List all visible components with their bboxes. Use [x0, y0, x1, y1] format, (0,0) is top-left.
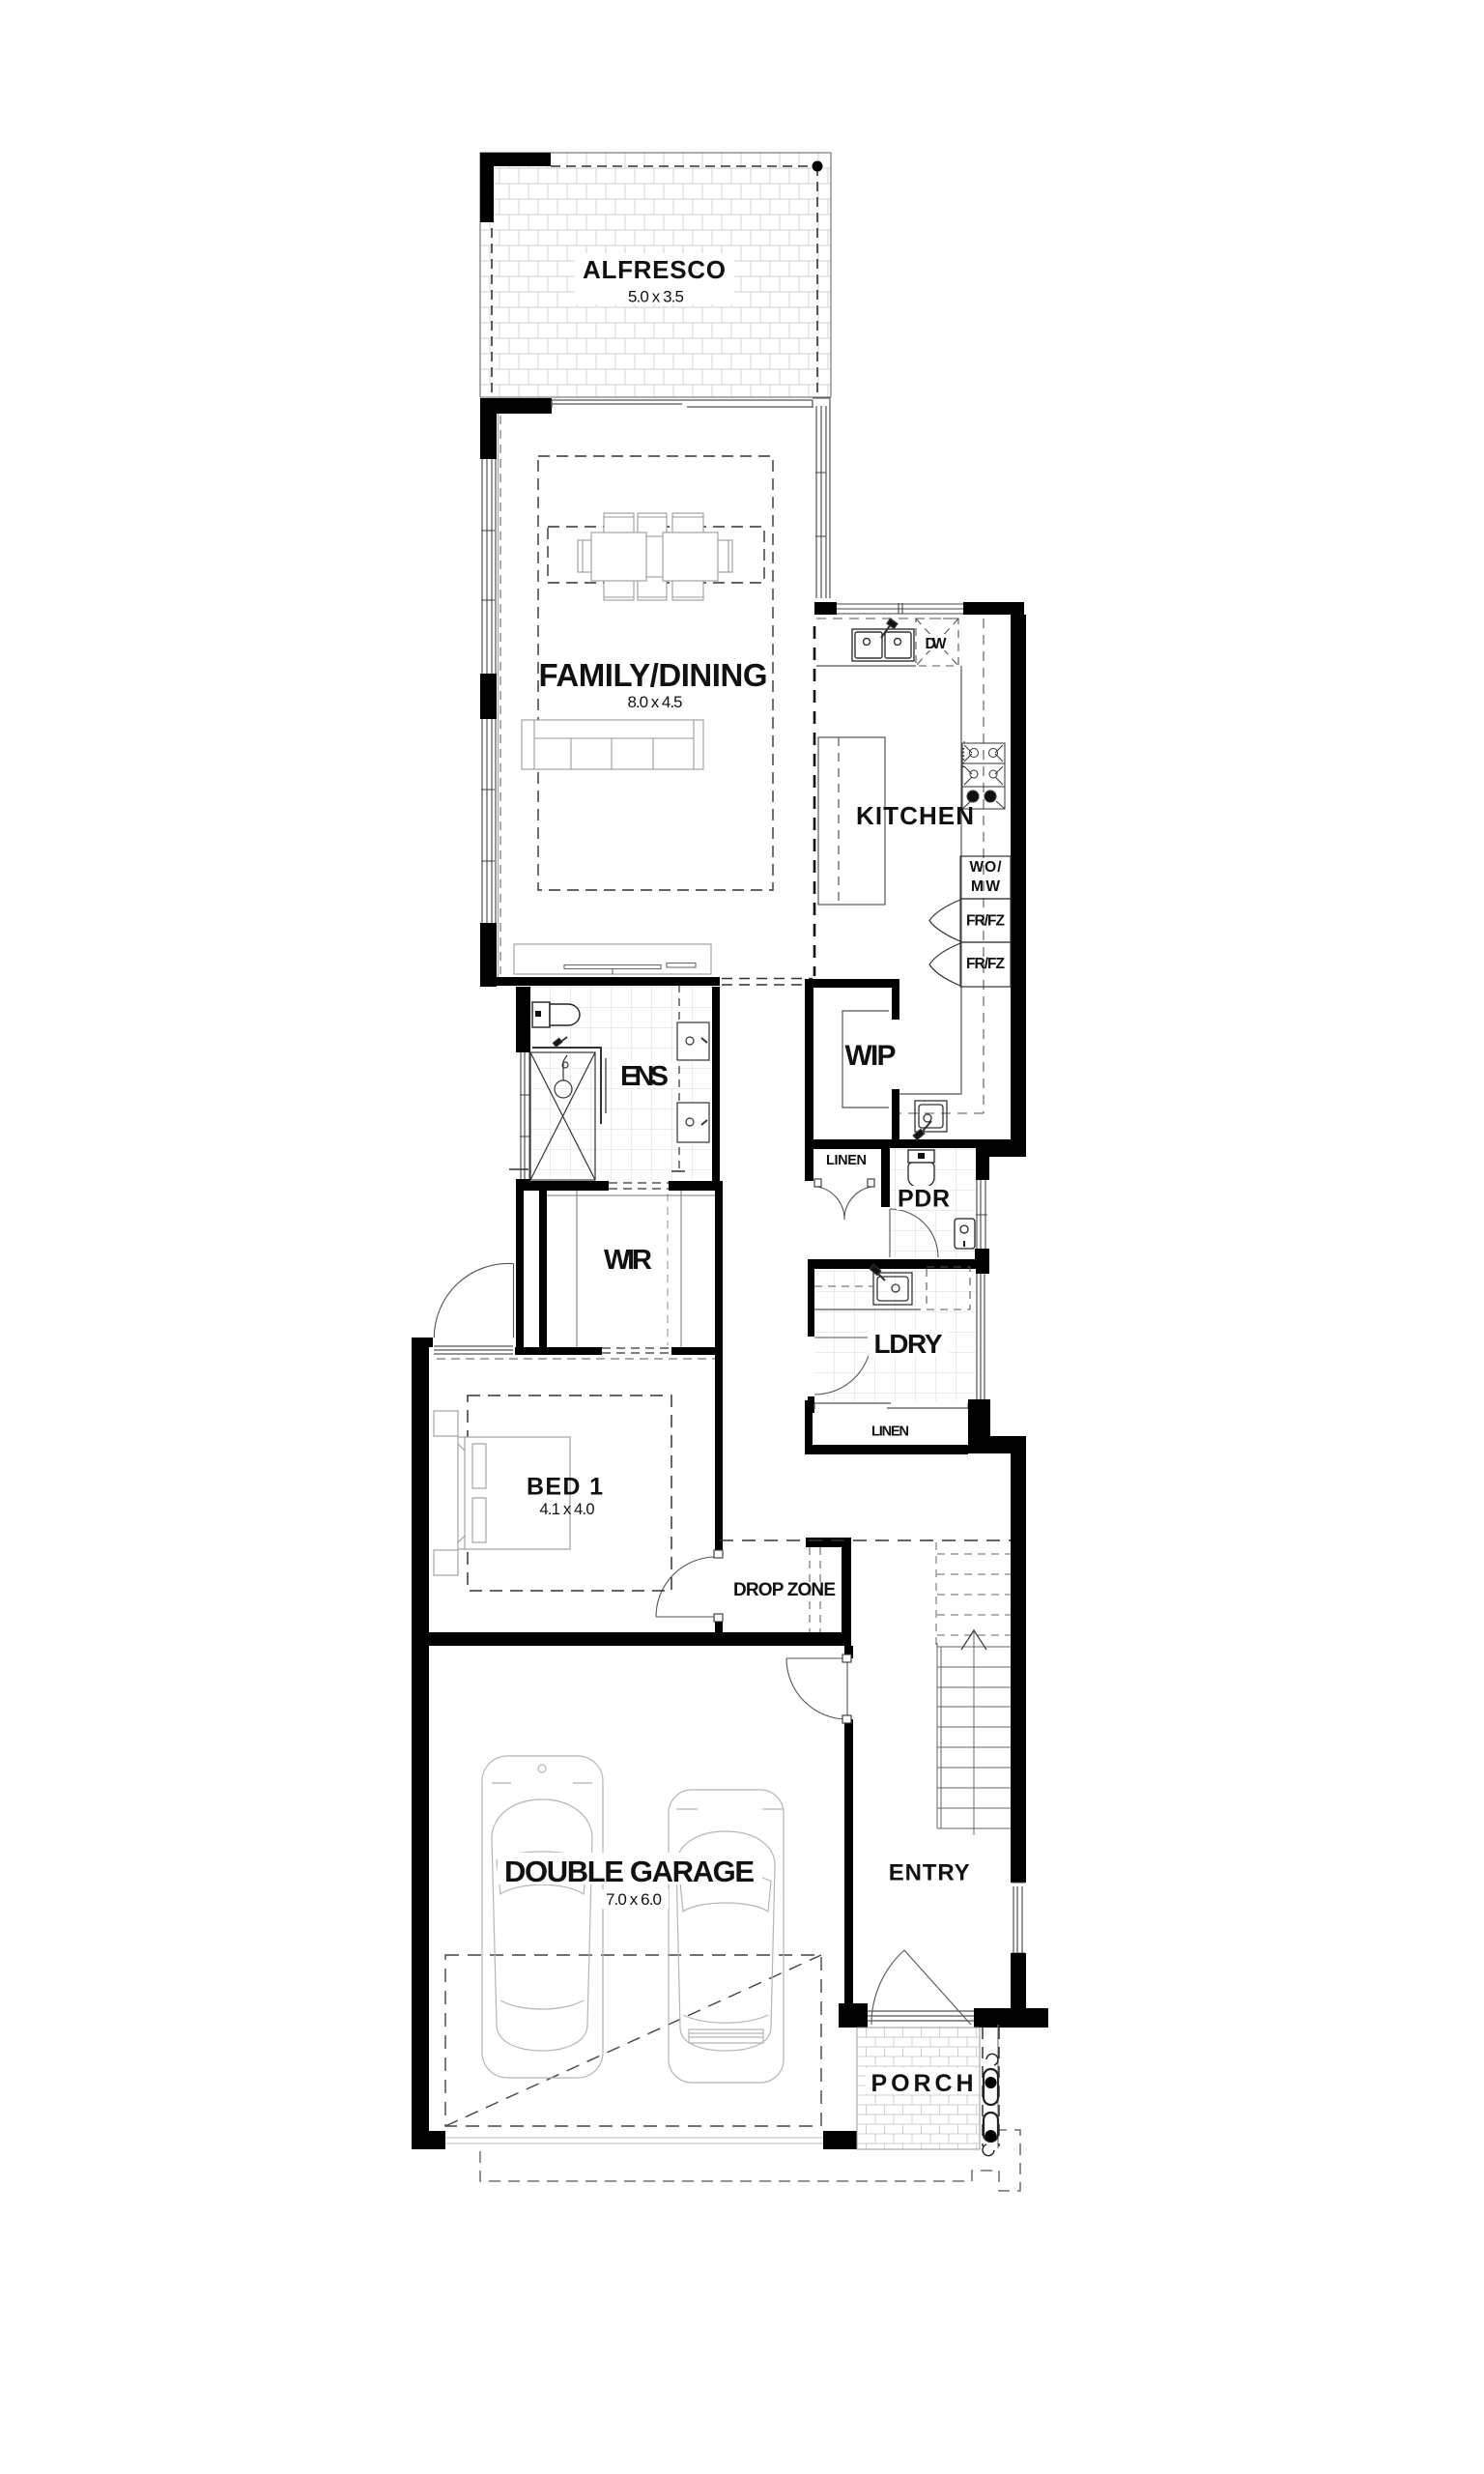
- svg-text:ENS: ENS: [620, 1061, 669, 1092]
- svg-text:7.0 x 6.0: 7.0 x 6.0: [606, 1890, 662, 1909]
- svg-text:FAMILY/DINING: FAMILY/DINING: [539, 657, 768, 693]
- svg-text:WIR: WIR: [604, 1245, 652, 1276]
- svg-text:KITCHEN: KITCHEN: [856, 801, 974, 830]
- svg-text:4.1 x 4.0: 4.1 x 4.0: [540, 1501, 595, 1518]
- svg-text:ENTRY: ENTRY: [889, 1860, 970, 1886]
- svg-text:8.0 x 4.5: 8.0 x 4.5: [628, 693, 683, 711]
- svg-text:DROP ZONE: DROP ZONE: [733, 1580, 836, 1600]
- svg-text:PDR: PDR: [898, 1186, 950, 1213]
- svg-text:LINEN: LINEN: [871, 1424, 909, 1440]
- svg-text:WIP: WIP: [845, 1040, 897, 1072]
- svg-text:ALFRESCO: ALFRESCO: [583, 255, 726, 284]
- svg-text:BED 1: BED 1: [527, 1474, 603, 1501]
- svg-text:MW: MW: [971, 878, 1000, 895]
- svg-text:DOUBLE GARAGE: DOUBLE GARAGE: [504, 1855, 755, 1888]
- svg-text:WO/: WO/: [970, 859, 1003, 876]
- svg-text:LINEN: LINEN: [826, 1153, 867, 1168]
- svg-text:FR/FZ: FR/FZ: [966, 913, 1006, 930]
- svg-text:LDRY: LDRY: [874, 1329, 943, 1359]
- svg-text:PORCH: PORCH: [871, 2070, 974, 2097]
- svg-text:5.0 x 3.5: 5.0 x 3.5: [628, 288, 684, 306]
- svg-text:DW: DW: [926, 636, 947, 652]
- svg-text:FR/FZ: FR/FZ: [966, 956, 1006, 972]
